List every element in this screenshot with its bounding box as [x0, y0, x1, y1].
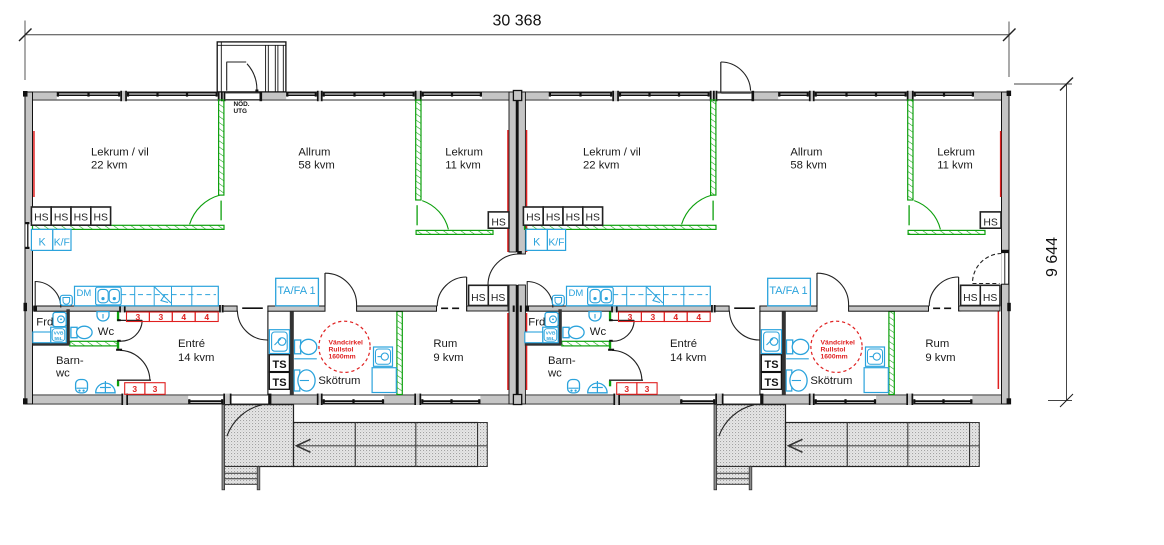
svg-text:Lekrum / vil: Lekrum / vil: [583, 146, 641, 158]
svg-text:Vändcirkel: Vändcirkel: [329, 339, 363, 346]
svg-text:HS: HS: [471, 293, 486, 304]
svg-text:HS: HS: [546, 213, 561, 224]
svg-text:HS: HS: [585, 213, 600, 224]
svg-text:HS: HS: [74, 213, 89, 224]
svg-text:Barn-: Barn-: [56, 355, 84, 367]
svg-text:K: K: [533, 236, 541, 248]
svg-text:HS: HS: [963, 293, 978, 304]
svg-text:HS: HS: [54, 213, 69, 224]
svg-text:HS: HS: [983, 293, 998, 304]
svg-text:wc: wc: [547, 367, 562, 379]
svg-text:TA/FA 1: TA/FA 1: [769, 285, 807, 297]
svg-text:Skötrum: Skötrum: [810, 375, 852, 387]
svg-text:VVB: VVB: [546, 331, 556, 337]
svg-text:Rum: Rum: [925, 338, 949, 350]
svg-text:11 kvm: 11 kvm: [937, 160, 973, 172]
svg-text:HS: HS: [491, 217, 506, 228]
svg-text:58 kvm: 58 kvm: [790, 160, 826, 172]
svg-text:K/F: K/F: [54, 237, 70, 248]
svg-text:9 kvm: 9 kvm: [433, 352, 463, 364]
svg-text:58 kvm: 58 kvm: [298, 160, 334, 172]
svg-text:HS: HS: [34, 213, 49, 224]
svg-text:22 kvm: 22 kvm: [583, 160, 619, 172]
svg-text:3: 3: [159, 312, 164, 322]
svg-text:3: 3: [645, 384, 650, 394]
svg-text:9 kvm: 9 kvm: [925, 352, 955, 364]
svg-text:3: 3: [132, 384, 137, 394]
svg-text:HS: HS: [983, 217, 998, 228]
svg-text:30 368: 30 368: [493, 13, 542, 30]
svg-text:TA/FA 1: TA/FA 1: [277, 285, 315, 297]
svg-text:DM: DM: [77, 288, 92, 299]
svg-text:4: 4: [181, 312, 186, 322]
svg-text:4: 4: [673, 312, 678, 322]
svg-text:11 kvm: 11 kvm: [445, 160, 481, 172]
svg-text:HS: HS: [566, 213, 581, 224]
svg-text:K/F: K/F: [548, 237, 564, 248]
svg-text:TS: TS: [272, 377, 286, 389]
svg-text:Wc: Wc: [98, 326, 115, 338]
svg-text:55L: 55L: [54, 336, 62, 342]
svg-text:HS: HS: [526, 213, 541, 224]
svg-text:3: 3: [651, 312, 656, 322]
svg-text:Rum: Rum: [433, 338, 457, 350]
svg-text:3: 3: [628, 312, 633, 322]
svg-text:3: 3: [153, 384, 158, 394]
svg-text:1600mm: 1600mm: [821, 353, 848, 360]
svg-text:3: 3: [136, 312, 141, 322]
svg-text:Entré: Entré: [670, 338, 697, 350]
svg-text:Skötrum: Skötrum: [318, 375, 360, 387]
svg-text:wc: wc: [55, 367, 70, 379]
svg-text:3: 3: [624, 384, 629, 394]
svg-text:Frd: Frd: [528, 317, 545, 329]
svg-text:Vändcirkel: Vändcirkel: [821, 339, 855, 346]
svg-text:TS: TS: [764, 359, 778, 371]
svg-text:TS: TS: [764, 377, 778, 389]
svg-text:DM: DM: [569, 288, 584, 299]
svg-text:UTG: UTG: [234, 108, 248, 115]
svg-text:14 kvm: 14 kvm: [670, 352, 706, 364]
svg-text:NÖD.: NÖD.: [234, 99, 250, 108]
svg-text:Allrum: Allrum: [790, 146, 822, 158]
svg-text:Lekrum: Lekrum: [445, 146, 483, 158]
svg-text:Wc: Wc: [590, 326, 607, 338]
svg-text:HS: HS: [491, 293, 506, 304]
svg-text:Allrum: Allrum: [298, 146, 330, 158]
svg-text:Lekrum: Lekrum: [937, 146, 975, 158]
svg-text:22 kvm: 22 kvm: [91, 160, 127, 172]
svg-text:Barn-: Barn-: [548, 355, 576, 367]
svg-text:4: 4: [204, 312, 209, 322]
svg-text:9 644: 9 644: [1044, 237, 1061, 277]
svg-text:4: 4: [696, 312, 701, 322]
svg-text:VVB: VVB: [54, 331, 64, 337]
svg-text:Entré: Entré: [178, 338, 205, 350]
svg-text:Frd: Frd: [36, 317, 53, 329]
svg-text:1600mm: 1600mm: [329, 353, 356, 360]
svg-text:TS: TS: [272, 359, 286, 371]
svg-text:14 kvm: 14 kvm: [178, 352, 214, 364]
svg-text:55L: 55L: [546, 336, 554, 342]
svg-text:Lekrum / vil: Lekrum / vil: [91, 146, 149, 158]
svg-text:K: K: [38, 236, 46, 248]
svg-text:HS: HS: [93, 213, 108, 224]
